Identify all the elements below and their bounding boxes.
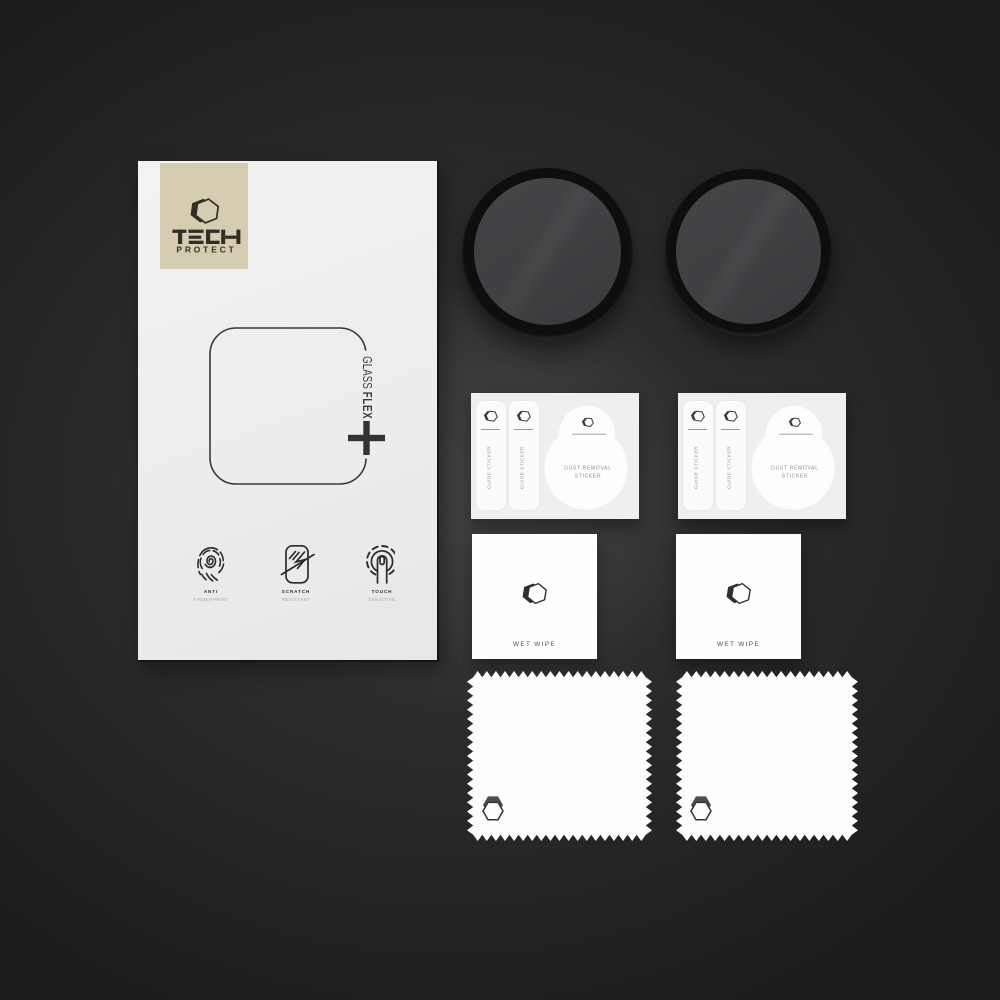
svg-text:STICKER: STICKER [782, 474, 809, 480]
svg-text:PROTECT: PROTECT [176, 245, 236, 255]
svg-text:DUST REMOVAL: DUST REMOVAL [564, 466, 611, 472]
svg-text:STICKER: STICKER [575, 474, 602, 480]
svg-text:DUST REMOVAL: DUST REMOVAL [771, 466, 818, 472]
